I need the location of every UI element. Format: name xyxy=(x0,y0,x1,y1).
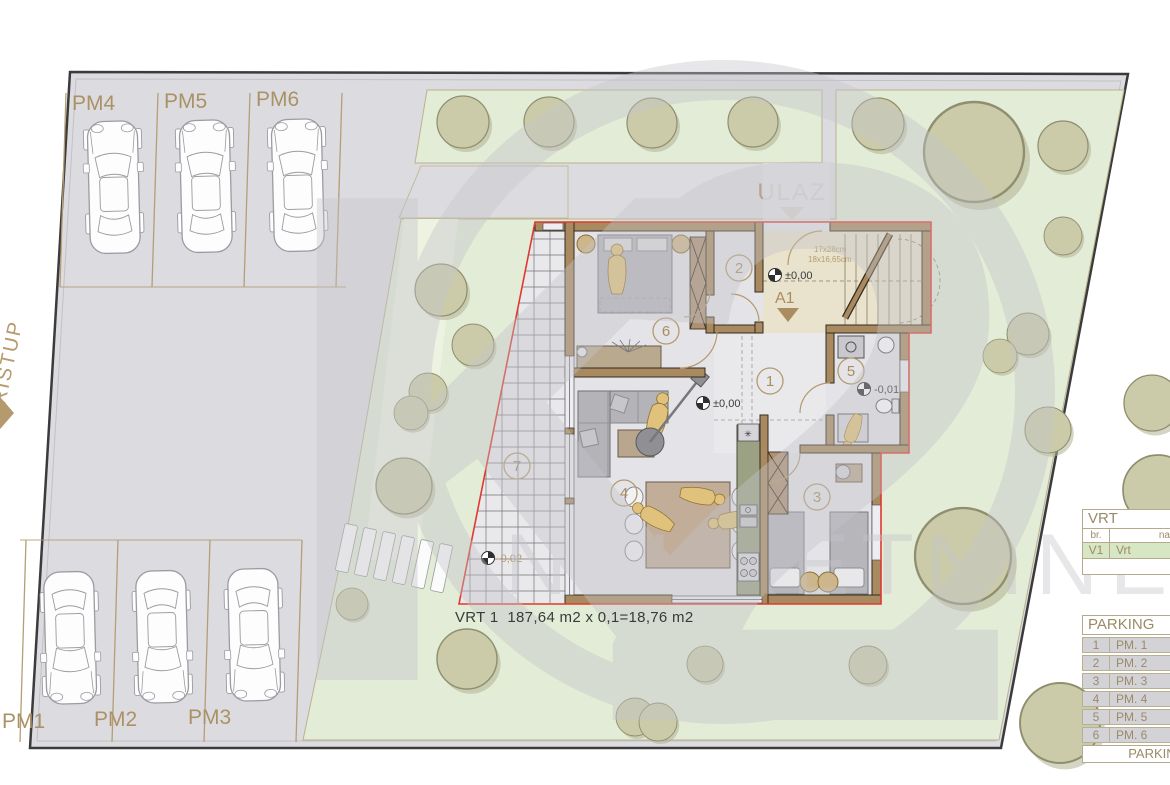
parking-row-name: PM. 6 xyxy=(1109,727,1170,743)
parking-row-num: 6 xyxy=(1082,727,1110,743)
parking-table: PARKING 1 PM. 1 2 PM. 2 3 PM. 3 4 PM. 4 … xyxy=(1082,615,1170,763)
parking-table-title: PARKING xyxy=(1082,615,1170,635)
parking-label-pm5: PM5 xyxy=(164,90,207,113)
garden-area-note: VRT 1 187,64 m2 x 0,1=18,76 m2 xyxy=(455,609,693,626)
parking-row-name: PM. 1 xyxy=(1109,637,1170,653)
table-row: 6 PM. 6 xyxy=(1082,727,1170,743)
vrt-empty-row xyxy=(1082,558,1170,575)
watermark-brand-text: NEKRETNINE xyxy=(505,517,1170,613)
table-row: 3 PM. 3 xyxy=(1082,673,1170,689)
parking-row-num: 1 xyxy=(1082,637,1110,653)
parking-row-name: PM. 5 xyxy=(1109,709,1170,725)
table-row: 2 PM. 2 xyxy=(1082,655,1170,671)
site-plan-sheet: PM4 PM5 PM6 PM1 PM2 PM3 ULAZ xyxy=(0,0,1170,785)
table-row: 4 PM. 4 xyxy=(1082,691,1170,707)
parking-row-num: 3 xyxy=(1082,673,1110,689)
parking-row-name: PM. 4 xyxy=(1109,691,1170,707)
parking-label-pm2: PM2 xyxy=(94,708,137,731)
parking-label-pm3: PM3 xyxy=(188,706,231,729)
parking-row-name: PM. 2 xyxy=(1109,655,1170,671)
table-row: V1 Vrt xyxy=(1082,542,1170,559)
parking-row-num: 4 xyxy=(1082,691,1110,707)
parking-label-pm1: PM1 xyxy=(2,710,45,733)
vrt-table: VRT br. naziv V1 Vrt xyxy=(1082,509,1170,575)
watermark-letter-2: 2 xyxy=(585,0,1030,785)
parking-row-name: PM. 3 xyxy=(1109,673,1170,689)
parking-row-num: 2 xyxy=(1082,655,1110,671)
vrt-row-name: Vrt xyxy=(1109,542,1170,559)
vrt-row-num: V1 xyxy=(1082,542,1110,559)
parking-row-num: 5 xyxy=(1082,709,1110,725)
parking-label-pm4: PM4 xyxy=(72,92,116,115)
table-row: 1 PM. 1 xyxy=(1082,637,1170,653)
parking-table-footer: PARKING xyxy=(1082,745,1170,763)
vrt-col-num: br. xyxy=(1082,528,1110,543)
site-plan-drawing: PM4 PM5 PM6 PM1 PM2 PM3 ULAZ xyxy=(0,0,1170,785)
vrt-col-name: naziv xyxy=(1109,528,1170,543)
table-row: 5 PM. 5 xyxy=(1082,709,1170,725)
vrt-table-header: br. naziv xyxy=(1082,528,1170,543)
vrt-table-title: VRT xyxy=(1082,509,1170,529)
